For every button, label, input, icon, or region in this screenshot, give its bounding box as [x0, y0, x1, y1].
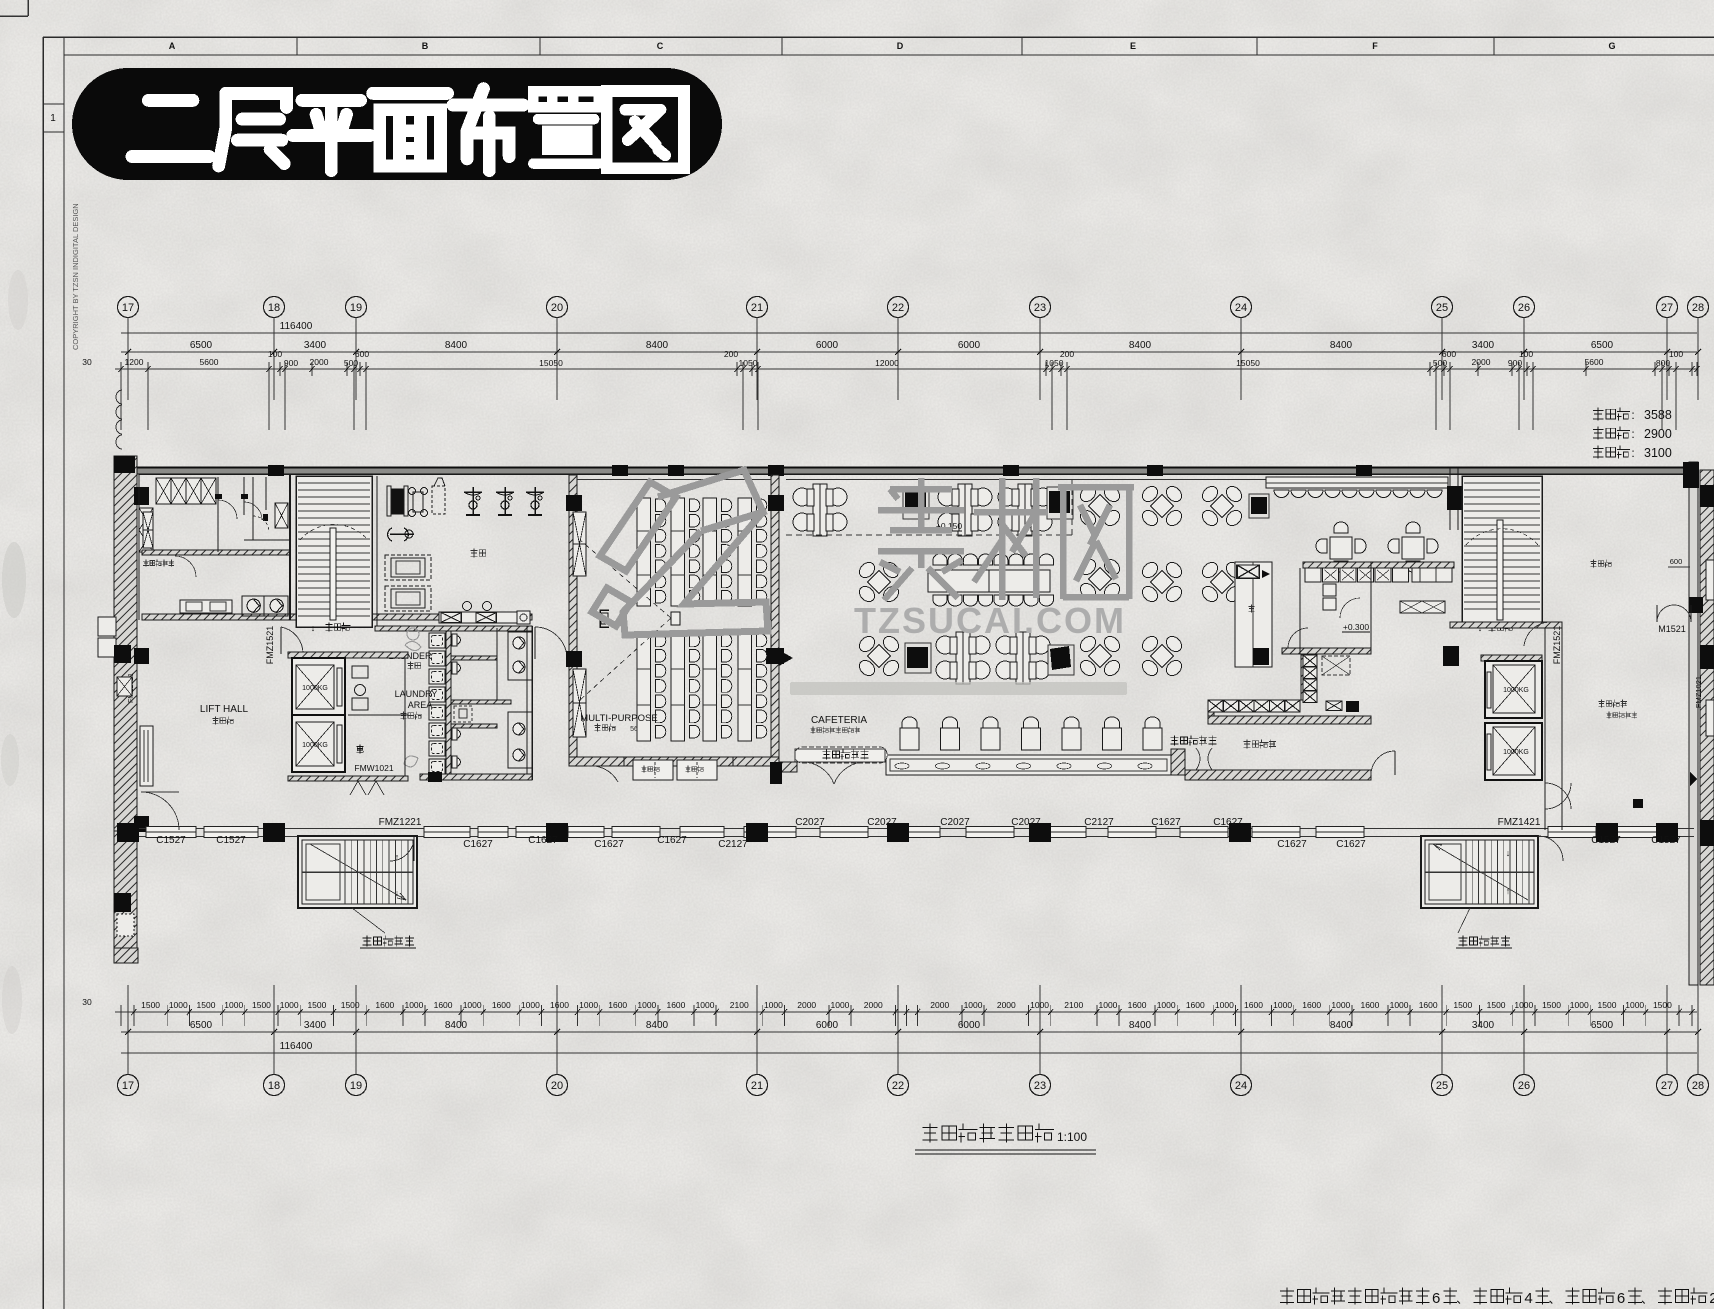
svg-text:4: 4 — [1524, 1290, 1532, 1307]
svg-text:1600: 1600 — [1360, 1000, 1379, 1010]
svg-text:25: 25 — [1436, 302, 1448, 314]
svg-text:C1627: C1627 — [657, 835, 687, 846]
svg-text:1600: 1600 — [1128, 1000, 1147, 1010]
svg-text:3400: 3400 — [1472, 340, 1495, 351]
svg-text:116400: 116400 — [280, 1041, 313, 1052]
svg-text:1000: 1000 — [169, 1000, 188, 1010]
svg-text:1000: 1000 — [637, 1000, 656, 1010]
svg-text:C2027: C2027 — [795, 817, 825, 828]
svg-text:56: 56 — [630, 726, 638, 733]
svg-text:M1521: M1521 — [1658, 624, 1686, 634]
svg-text:、: 、 — [1549, 1292, 1561, 1306]
svg-text:25: 25 — [1436, 1080, 1448, 1092]
svg-text:3400: 3400 — [304, 1020, 327, 1031]
svg-text:1000: 1000 — [1098, 1000, 1117, 1010]
svg-text:18: 18 — [268, 302, 280, 314]
svg-text:、: 、 — [1456, 1292, 1468, 1306]
svg-text:28: 28 — [1692, 302, 1704, 314]
svg-text:8400: 8400 — [1129, 1020, 1152, 1031]
svg-text:26: 26 — [1518, 1080, 1530, 1092]
svg-text:C2027: C2027 — [867, 817, 897, 828]
svg-text:1600: 1600 — [666, 1000, 685, 1010]
svg-text:LIFT HALL: LIFT HALL — [200, 704, 249, 715]
svg-text:21: 21 — [751, 1080, 763, 1092]
svg-text:C1627: C1627 — [1277, 839, 1307, 850]
svg-text:6000: 6000 — [958, 1020, 981, 1031]
svg-text:1000: 1000 — [964, 1000, 983, 1010]
svg-text:1600: 1600 — [434, 1000, 453, 1010]
svg-text:23: 23 — [1034, 302, 1046, 314]
svg-text:TZSUCAI.COM: TZSUCAI.COM — [854, 600, 1126, 641]
svg-text:C1627: C1627 — [528, 835, 558, 846]
svg-text:8400: 8400 — [445, 1020, 468, 1031]
svg-text:C1627: C1627 — [463, 839, 493, 850]
svg-text:19: 19 — [350, 302, 362, 314]
svg-text:8400: 8400 — [646, 1020, 669, 1031]
svg-text:20: 20 — [551, 302, 563, 314]
svg-text:24: 24 — [1235, 1080, 1247, 1092]
svg-text:1600: 1600 — [492, 1000, 511, 1010]
svg-text:1000: 1000 — [463, 1000, 482, 1010]
svg-text:1050: 1050 — [739, 358, 758, 368]
svg-text:1600: 1600 — [375, 1000, 394, 1010]
svg-text:6: 6 — [1617, 1290, 1625, 1307]
svg-text:6500: 6500 — [190, 1020, 213, 1031]
svg-text:1000: 1000 — [1570, 1000, 1589, 1010]
svg-text:C2027: C2027 — [940, 817, 970, 828]
svg-text:200: 200 — [724, 349, 738, 359]
svg-text:3400: 3400 — [304, 340, 327, 351]
svg-text:F: F — [1372, 41, 1378, 51]
svg-text:1600: 1600 — [608, 1000, 627, 1010]
svg-text:1000: 1000 — [1390, 1000, 1409, 1010]
svg-text:22: 22 — [892, 1080, 904, 1092]
svg-text:12000: 12000 — [875, 358, 899, 368]
svg-text:G: G — [1608, 41, 1615, 51]
svg-text:1:100: 1:100 — [1057, 1130, 1087, 1144]
svg-text:FMZ1421: FMZ1421 — [1498, 817, 1541, 828]
svg-text:2000: 2000 — [1472, 357, 1491, 367]
svg-text:1000: 1000 — [1331, 1000, 1350, 1010]
svg-text::: : — [1631, 446, 1634, 460]
svg-text:C1627: C1627 — [1213, 817, 1243, 828]
svg-text:FMZ1221: FMZ1221 — [379, 817, 422, 828]
svg-text:1600: 1600 — [1419, 1000, 1438, 1010]
svg-text:900: 900 — [284, 358, 298, 368]
svg-text:6500: 6500 — [190, 340, 213, 351]
svg-text:1000: 1000 — [764, 1000, 783, 1010]
svg-text:1000: 1000 — [521, 1000, 540, 1010]
svg-text::: : — [1631, 408, 1634, 422]
svg-text:100: 100 — [1519, 349, 1533, 359]
svg-text:8400: 8400 — [1129, 340, 1152, 351]
svg-text:FMZ1521: FMZ1521 — [1552, 626, 1562, 665]
svg-text:6500: 6500 — [1591, 1020, 1614, 1031]
svg-text:1000: 1000 — [1157, 1000, 1176, 1010]
svg-text:2000: 2000 — [864, 1000, 883, 1010]
svg-text:1500: 1500 — [141, 1000, 160, 1010]
svg-text:↓: ↓ — [311, 623, 316, 633]
svg-text:B: B — [422, 41, 429, 51]
svg-text:1600: 1600 — [1302, 1000, 1321, 1010]
svg-text:800: 800 — [1656, 358, 1670, 368]
svg-text:21: 21 — [751, 302, 763, 314]
svg-text:AREA: AREA — [408, 700, 433, 710]
svg-text:200: 200 — [1060, 349, 1074, 359]
svg-text:1000: 1000 — [404, 1000, 423, 1010]
svg-text:2900: 2900 — [1644, 427, 1672, 441]
svg-text:600: 600 — [355, 349, 369, 359]
svg-text:8400: 8400 — [646, 340, 669, 351]
svg-text:1500: 1500 — [197, 1000, 216, 1010]
svg-text:1000: 1000 — [224, 1000, 243, 1010]
svg-text:FMZ1021: FMZ1021 — [1694, 676, 1703, 708]
svg-text:1500: 1500 — [307, 1000, 326, 1010]
svg-text:3588: 3588 — [1644, 408, 1672, 422]
svg-text:116400: 116400 — [280, 321, 313, 332]
svg-text:E: E — [1130, 41, 1136, 51]
svg-text:C1627: C1627 — [1151, 817, 1181, 828]
svg-text:↓: ↓ — [395, 888, 400, 898]
svg-text:1000: 1000 — [696, 1000, 715, 1010]
svg-text:1000KG: 1000KG — [1503, 749, 1529, 756]
svg-text:5600: 5600 — [1585, 357, 1604, 367]
svg-text:6000: 6000 — [816, 1020, 839, 1031]
svg-text:+0.300: +0.300 — [1343, 622, 1370, 632]
svg-text:CAFETERIA: CAFETERIA — [811, 715, 867, 726]
svg-text:6: 6 — [1432, 1290, 1440, 1307]
svg-text:23: 23 — [1034, 1080, 1046, 1092]
svg-text:C1627: C1627 — [594, 839, 624, 850]
svg-text:1500: 1500 — [1542, 1000, 1561, 1010]
svg-text:C1527: C1527 — [1651, 835, 1681, 846]
svg-text:C1527: C1527 — [1591, 835, 1621, 846]
svg-text:↑: ↑ — [1506, 886, 1511, 896]
svg-text:1600: 1600 — [1244, 1000, 1263, 1010]
svg-text:6500: 6500 — [1591, 340, 1614, 351]
svg-text:1500: 1500 — [1653, 1000, 1672, 1010]
svg-text:FMW1021: FMW1021 — [354, 763, 393, 773]
svg-text:1500: 1500 — [341, 1000, 360, 1010]
svg-text:27: 27 — [1661, 1080, 1673, 1092]
svg-text:C2027: C2027 — [1011, 817, 1041, 828]
svg-text:C1527: C1527 — [216, 835, 246, 846]
svg-text:30: 30 — [82, 997, 92, 1007]
svg-text:24: 24 — [1235, 302, 1247, 314]
svg-text:28: 28 — [1692, 1080, 1704, 1092]
svg-text:1000KG: 1000KG — [302, 685, 328, 692]
svg-text:1000: 1000 — [1273, 1000, 1292, 1010]
svg-text:1500: 1500 — [1453, 1000, 1472, 1010]
svg-text:15050: 15050 — [1236, 358, 1260, 368]
svg-text:C1527: C1527 — [156, 835, 186, 846]
svg-text:6000: 6000 — [958, 340, 981, 351]
svg-text:8400: 8400 — [445, 340, 468, 351]
svg-text:1200: 1200 — [125, 357, 144, 367]
svg-text:5600: 5600 — [200, 357, 219, 367]
svg-text:30: 30 — [82, 357, 92, 367]
svg-text:1000: 1000 — [1030, 1000, 1049, 1010]
svg-text:900: 900 — [1508, 358, 1522, 368]
svg-text:1600: 1600 — [1186, 1000, 1205, 1010]
svg-text:C: C — [657, 41, 664, 51]
svg-text:MULTI-PURPOSE: MULTI-PURPOSE — [580, 713, 657, 724]
svg-text:2000: 2000 — [930, 1000, 949, 1010]
svg-text:600: 600 — [1442, 349, 1456, 359]
svg-text:2: 2 — [1709, 1290, 1714, 1307]
svg-text:2000: 2000 — [797, 1000, 816, 1010]
svg-text:1500: 1500 — [1598, 1000, 1617, 1010]
svg-text:100: 100 — [268, 349, 282, 359]
svg-text:1000: 1000 — [1215, 1000, 1234, 1010]
svg-text:FMZ1521: FMZ1521 — [265, 626, 275, 665]
svg-text:C2127: C2127 — [1084, 817, 1114, 828]
svg-text:27: 27 — [1661, 302, 1673, 314]
svg-text:1500: 1500 — [1487, 1000, 1506, 1010]
svg-text:COPYRIGHT BY TZSN INDIGITAL DE: COPYRIGHT BY TZSN INDIGITAL DESIGN — [71, 203, 80, 350]
svg-text:3100: 3100 — [1644, 446, 1672, 460]
svg-text:2100: 2100 — [1064, 1000, 1083, 1010]
svg-text:D: D — [897, 41, 904, 51]
svg-text:C1627: C1627 — [1336, 839, 1366, 850]
svg-text:1000: 1000 — [831, 1000, 850, 1010]
svg-text:19: 19 — [350, 1080, 362, 1092]
svg-text:8400: 8400 — [1330, 1020, 1353, 1031]
svg-text:2100: 2100 — [730, 1000, 749, 1010]
svg-text:17: 17 — [122, 1080, 134, 1092]
svg-text:1000: 1000 — [1514, 1000, 1533, 1010]
svg-text:1000: 1000 — [280, 1000, 299, 1010]
svg-text:、: 、 — [1641, 1292, 1653, 1306]
svg-text:3400: 3400 — [1472, 1020, 1495, 1031]
svg-text:100: 100 — [1669, 349, 1683, 359]
svg-text:LAUNDRY: LAUNDRY — [395, 689, 438, 699]
svg-text:1500: 1500 — [252, 1000, 271, 1010]
svg-text:1: 1 — [50, 113, 56, 124]
svg-text:1000KG: 1000KG — [302, 742, 328, 749]
svg-text:2000: 2000 — [310, 357, 329, 367]
svg-text:18: 18 — [268, 1080, 280, 1092]
svg-text:500: 500 — [1433, 358, 1447, 368]
svg-text:22: 22 — [892, 302, 904, 314]
svg-text::: : — [1631, 427, 1634, 441]
svg-text:1000: 1000 — [1625, 1000, 1644, 1010]
svg-text:↓: ↓ — [1506, 848, 1511, 858]
svg-text:C2127: C2127 — [718, 839, 748, 850]
svg-text:15050: 15050 — [539, 358, 563, 368]
svg-text:600: 600 — [1670, 557, 1683, 566]
svg-text:8400: 8400 — [1330, 340, 1353, 351]
svg-text:26: 26 — [1518, 302, 1530, 314]
svg-text:1600: 1600 — [550, 1000, 569, 1010]
svg-text:2000: 2000 — [997, 1000, 1016, 1010]
svg-text:1000KG: 1000KG — [1503, 687, 1529, 694]
svg-text:6000: 6000 — [816, 340, 839, 351]
svg-text:17: 17 — [122, 302, 134, 314]
svg-text:1000: 1000 — [579, 1000, 598, 1010]
svg-text:20: 20 — [551, 1080, 563, 1092]
svg-text:A: A — [169, 41, 176, 51]
